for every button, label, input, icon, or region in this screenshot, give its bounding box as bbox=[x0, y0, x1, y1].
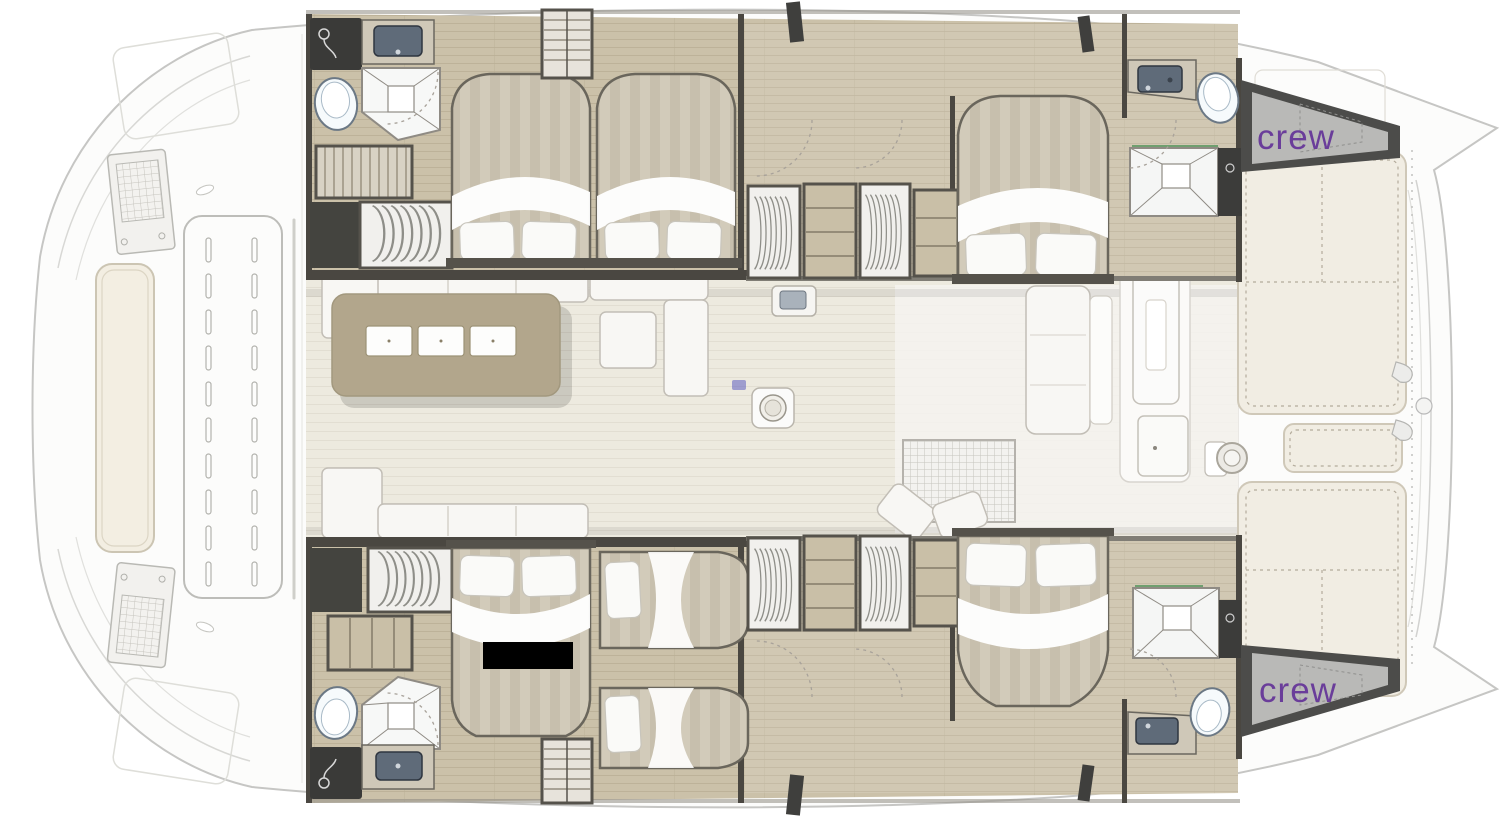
pillow bbox=[459, 221, 514, 261]
salon-sofa-right bbox=[1026, 286, 1112, 434]
stairs-bottom bbox=[542, 739, 592, 803]
catamaran-deck-plan: crew bbox=[0, 0, 1500, 817]
wardrobe-slatted-top bbox=[316, 146, 412, 198]
blue-watermark bbox=[732, 380, 746, 390]
bed-double-top-aft bbox=[952, 96, 1114, 284]
hanging-closet-top-fwd bbox=[360, 202, 452, 268]
pillow bbox=[521, 221, 576, 261]
windlass-console-top bbox=[107, 149, 175, 255]
locker-dark-aft-bottom bbox=[1219, 600, 1241, 658]
pillow bbox=[459, 555, 514, 597]
pillow bbox=[521, 555, 576, 597]
locker-dark-top bbox=[310, 202, 360, 268]
pillow bbox=[605, 695, 642, 753]
crew-label-top: crew bbox=[1257, 118, 1335, 157]
hanging-closet-bottom-fwd bbox=[368, 548, 452, 612]
closets-top-mid bbox=[748, 184, 958, 278]
cockpit-bench-mid bbox=[1284, 424, 1402, 472]
bathroom-bottom-forward bbox=[310, 677, 440, 799]
bed-double-bottom-aft bbox=[952, 528, 1114, 706]
pillow bbox=[1035, 543, 1096, 587]
shower-cubicle-dark bbox=[310, 747, 362, 799]
closets-bottom-mid bbox=[748, 536, 958, 630]
cockpit-cushion-top bbox=[1238, 152, 1406, 414]
shelf-unit-bottom bbox=[328, 616, 412, 670]
hull-top: crew bbox=[306, 1, 1400, 284]
bed-single-2 bbox=[600, 688, 748, 768]
galley-sink-unit bbox=[772, 286, 816, 316]
stairs-top bbox=[542, 10, 592, 78]
winch bbox=[1205, 442, 1247, 476]
bathroom-top-forward bbox=[310, 18, 440, 140]
pillow bbox=[965, 543, 1026, 587]
sink-basin bbox=[1136, 718, 1178, 744]
redaction-bar bbox=[483, 642, 573, 669]
bow-sunpad bbox=[96, 264, 154, 552]
windlass-console-bottom bbox=[107, 562, 175, 668]
pillow bbox=[666, 221, 721, 261]
salon bbox=[306, 268, 1238, 543]
hull-bottom: crew bbox=[306, 528, 1400, 816]
pillow bbox=[965, 233, 1026, 277]
bed-single-1 bbox=[600, 552, 748, 648]
foredeck-slatted-bench bbox=[184, 216, 282, 598]
pillow bbox=[1035, 233, 1096, 277]
deck-plan-svg: crew bbox=[0, 0, 1500, 817]
sink-basin bbox=[1138, 66, 1182, 92]
bed-double-top-2 bbox=[597, 74, 735, 262]
shower-cubicle-dark bbox=[310, 18, 362, 70]
mast-foot-table bbox=[752, 388, 794, 428]
crew-label-bottom: crew bbox=[1259, 671, 1337, 710]
bed-double-bottom-fwd bbox=[446, 540, 596, 736]
locker-dark-bottom bbox=[310, 548, 362, 612]
bed-base-top bbox=[446, 258, 742, 268]
pillow bbox=[604, 221, 659, 261]
bed-double-top-1 bbox=[452, 74, 590, 262]
helm-console bbox=[1120, 262, 1190, 482]
locker-dark-aft-top bbox=[1218, 148, 1242, 216]
galley-island bbox=[332, 294, 572, 408]
cockpit-table bbox=[1138, 416, 1188, 476]
pillow bbox=[605, 561, 642, 619]
